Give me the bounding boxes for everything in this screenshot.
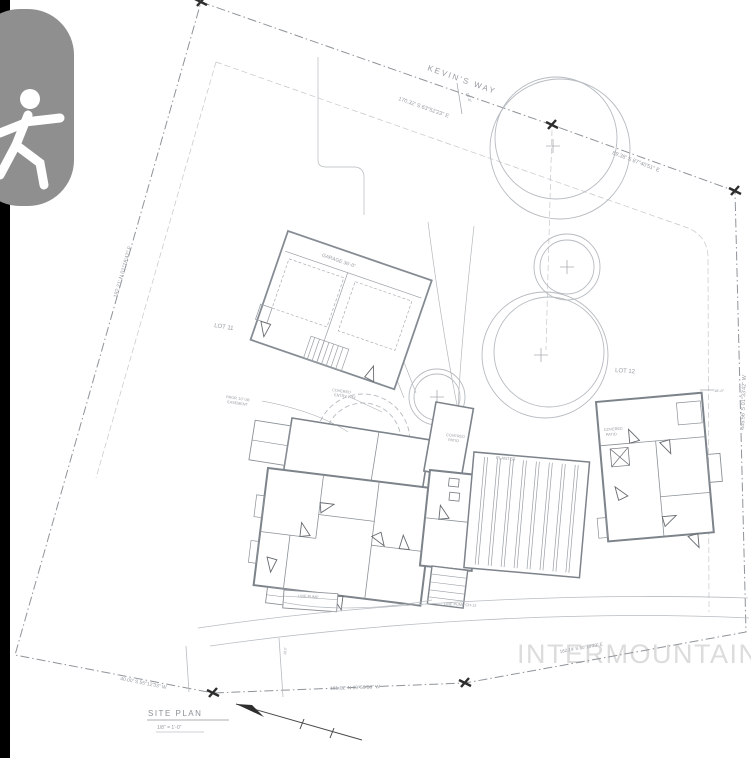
garage-outline: GARAGE 36'-0" [248, 230, 432, 390]
bearing-top: 170.32' S 63°52'23" E [397, 96, 450, 120]
site-plan-title: SITE PLAN [148, 709, 202, 718]
patio-b-line2: PATIO [606, 432, 617, 437]
floorplan-badge[interactable] [0, 9, 74, 206]
bearing-left: 182.21' N 01°18'47" E [113, 245, 134, 299]
house-slat-deck [464, 452, 590, 578]
site-plan-drawing: INTERMOUNTAIN [0, 0, 751, 758]
site-plan-scale: 1/8" = 1'-0" [157, 725, 182, 731]
walking-person-icon [0, 87, 68, 199]
dim-top: 16'-0" [465, 92, 473, 104]
bearing-bottom: 161.02' N 89°59'58" W [330, 684, 381, 692]
dim-bottom: 18.0' [283, 647, 288, 655]
lot-11-label: LOT 11 [214, 323, 235, 332]
lot-12-label: LOT 12 [615, 368, 636, 375]
house-left-block [244, 467, 435, 621]
north-arrow [236, 704, 362, 740]
dim-right: 16'-0" [714, 388, 725, 393]
photo-viewer: INTERMOUNTAIN [0, 0, 751, 758]
title-block: SITE PLAN 1/8" = 1'-0" [147, 709, 229, 732]
house-right-wing [587, 392, 728, 557]
pump-strip [283, 590, 338, 612]
bearing-bottom-left: 40.00' S 55°12'33" W [120, 676, 168, 691]
watermark-text: INTERMOUNTAIN [517, 639, 751, 669]
bearing-right: 445.56' S 01°33'42" W [740, 374, 748, 430]
covered-entry-line2: ENTRY WAY [334, 393, 357, 400]
bearing-top-right: 89.38' S 87°40'51" E [611, 150, 660, 174]
street-label: KEVIN'S WAY [426, 63, 497, 96]
